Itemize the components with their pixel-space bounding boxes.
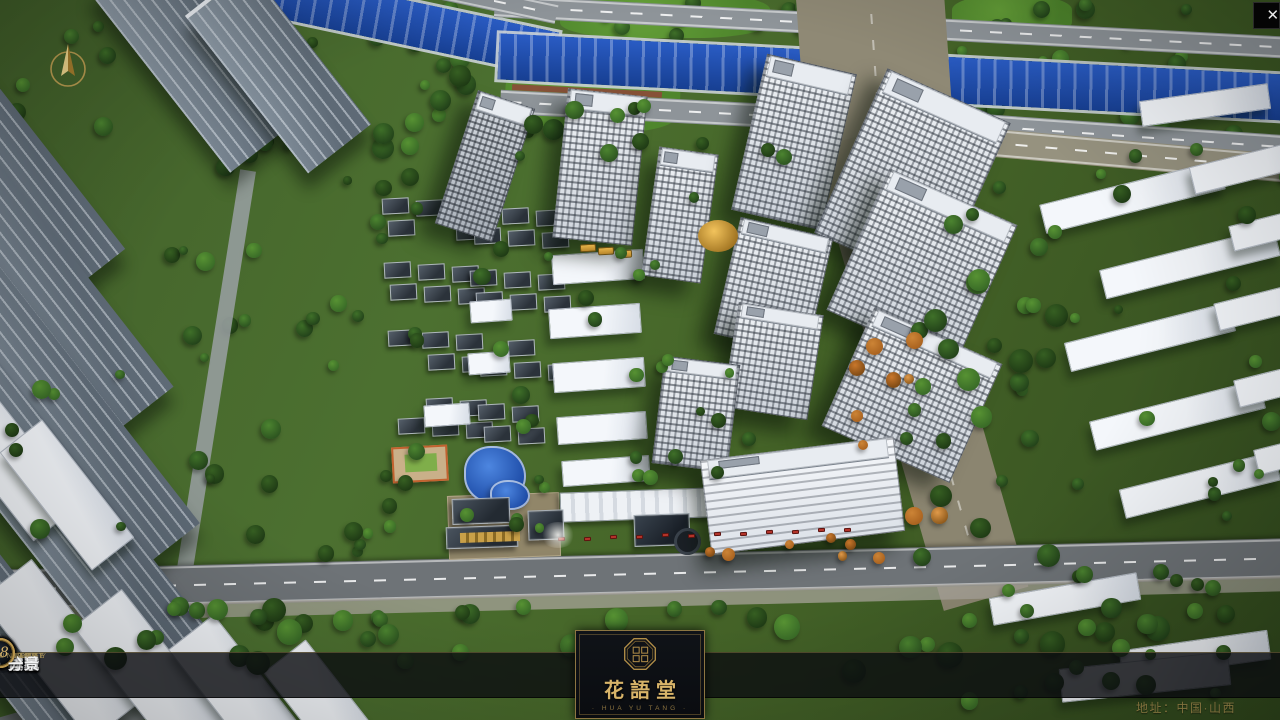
tree [1113,185,1131,203]
tree [1249,355,1262,368]
tree [761,143,775,157]
tree [261,475,279,493]
tree [776,149,792,165]
tree [330,295,347,312]
tree [908,403,922,417]
tree [1095,622,1115,642]
aerial-render-scene [0,0,1280,720]
tree [1114,305,1123,314]
orange-tree [904,374,914,384]
tree [1139,411,1154,426]
tree [420,80,430,90]
apartment-slab [423,402,470,427]
tree [1030,238,1048,256]
parked-car [766,530,773,534]
tree [1170,574,1183,587]
parked-car [740,532,747,536]
tree [669,28,684,43]
parked-car [714,531,721,535]
tree [1033,1,1050,18]
seal-emblem-icon [623,637,657,671]
tree [913,548,931,566]
tree [962,613,977,628]
orange-tree [845,539,856,550]
courtyard-home [478,403,506,420]
courtyard-home [502,207,530,224]
tree [63,614,82,633]
tree [373,123,394,144]
entrance-plaza-circle [674,528,701,555]
parked-car [792,530,799,534]
tree [509,517,524,532]
tree [516,419,531,434]
tree [968,269,990,291]
tree [987,338,1002,353]
tree [938,339,959,360]
tree [1208,477,1218,487]
tree [328,360,339,371]
tree [711,600,727,616]
courtyard-home [384,261,412,278]
tree [430,90,451,111]
tree [405,113,425,133]
tree [996,475,1008,487]
tree [378,624,399,645]
tree [179,246,188,255]
courtyard-home [382,197,410,214]
tree [512,386,530,404]
project-name-latin: · HUA YU TANG · [592,705,688,712]
tree [167,602,181,616]
courtyard-home [424,285,452,302]
tree [1036,348,1057,369]
tree [455,605,470,620]
tree [515,151,525,161]
tree [5,423,19,437]
parked-car [688,533,695,537]
tree [696,137,709,150]
tree [650,260,660,270]
tree [370,214,386,230]
apartment-slab [1213,277,1280,331]
tree [196,252,215,271]
tree [971,406,992,427]
tree [1010,373,1029,392]
tree [936,433,951,448]
tree [643,470,658,485]
tree [1254,469,1264,479]
parked-car [636,535,643,539]
tree [774,614,800,640]
tree [410,333,424,347]
courtyard-home [514,361,542,378]
tree [915,378,931,394]
courtyard-home [504,271,532,288]
tree [630,451,643,464]
tree [189,602,205,618]
tree [1078,619,1095,636]
tree [667,601,682,616]
tree [1096,169,1106,179]
tree [543,119,564,140]
courtyard-home [456,333,484,350]
courtyard-home [418,263,446,280]
tree [534,475,544,485]
tree [1187,603,1203,619]
residential-tower [722,302,824,420]
tree [1072,478,1085,491]
tree [189,451,207,469]
shuttle-bus [598,247,614,256]
tree [1026,298,1041,313]
apartment-slab [1064,302,1236,372]
tree [93,21,104,32]
tree [306,312,319,325]
tree [725,368,734,377]
tree [16,78,30,92]
tree [1037,544,1060,567]
tree [1262,412,1280,432]
project-address: 地址：中国·山西 [1136,699,1236,716]
apartment-slab [469,299,512,324]
tree [183,326,202,345]
tree [277,619,302,644]
courtyard-home [508,229,536,246]
tree [200,353,209,362]
tree [401,137,419,155]
tree [957,368,980,391]
shopfront-strip [460,531,520,543]
tree [970,518,991,539]
courtyard-home [388,219,416,236]
tree [1226,276,1241,291]
tree [1070,313,1080,323]
tree [668,449,683,464]
orange-tree [849,360,865,376]
tree [930,485,952,507]
orange-tree [906,332,923,349]
tree [398,475,414,491]
tree [460,508,474,522]
tree [384,520,397,533]
tree [1181,4,1192,15]
tree [1048,225,1062,239]
tree [1137,614,1158,635]
tree [629,368,643,382]
tree [94,117,113,136]
tree [600,144,618,162]
tree [1014,629,1029,644]
tree [246,243,262,259]
gold-sculpture [698,220,738,252]
tree [924,309,948,333]
tree [380,470,392,482]
tree [747,607,768,628]
project-logo-panel: 花語堂 · HUA YU TANG · [575,630,705,719]
project-name: 花語堂 [604,674,682,703]
tree [449,65,471,87]
tree [375,180,392,197]
tree [565,101,584,120]
tree [944,215,963,234]
tree [588,312,602,326]
tree [1021,430,1039,448]
tree [352,310,364,322]
close-button[interactable]: ✕ [1253,2,1280,29]
apartment-slab [556,411,648,445]
tree [116,522,125,531]
tree [1009,349,1033,373]
tree [137,630,157,650]
tree [1076,566,1093,583]
tree [1233,459,1245,471]
tree [1045,304,1068,327]
tree [382,498,398,514]
tree [360,631,376,647]
tree [1020,604,1034,618]
tree [30,519,50,539]
orange-tree [931,507,948,524]
parked-car [818,528,825,532]
courtyard-home [398,417,426,434]
tree [1129,149,1142,162]
tree [246,525,265,544]
tree [524,115,543,134]
tree [239,314,251,326]
orange-tree [851,410,863,422]
light-glare [540,522,576,548]
close-icon: ✕ [1267,3,1280,28]
tree [493,241,509,257]
tree [164,247,180,263]
orange-tree [785,540,794,549]
nav-label-en: COMMUNITY [0,653,32,660]
tree [957,46,966,55]
tree [1101,598,1122,619]
tree [1208,487,1221,500]
tree [333,610,353,630]
tree [99,47,116,64]
orange-tree [826,533,836,543]
tree [605,608,628,631]
tree [615,247,627,259]
courtyard-home [422,331,450,348]
tree [1205,580,1221,596]
tree [637,99,651,113]
tree [633,269,644,280]
tree [250,609,267,626]
tree [401,168,419,186]
courtyard-home [510,293,538,310]
tree [632,133,649,150]
parked-car [610,535,617,539]
shuttle-bus [580,244,596,253]
orange-tree [838,551,848,561]
parked-car [662,533,669,537]
tree [966,208,979,221]
tree [261,419,280,438]
tree [376,233,388,245]
tree [1190,143,1203,156]
orange-tree [722,548,735,561]
parked-car [584,537,591,541]
tree [363,528,373,538]
tree [742,432,756,446]
tree [318,545,334,561]
orange-tree [886,372,902,388]
tree [1238,206,1255,223]
tree [993,181,1006,194]
tree [920,637,935,652]
compass-icon [42,40,94,96]
courtyard-home [428,353,456,370]
tree [1222,511,1233,522]
tree [578,290,594,306]
tree [115,370,125,380]
tree [343,176,351,184]
tree [516,599,532,615]
courtyard-home [508,339,536,356]
tree [696,407,705,416]
orange-tree [873,552,885,564]
parked-car [844,528,851,532]
tree [1217,605,1235,623]
tree [900,432,913,445]
residential-tower [700,436,905,554]
courtyard-home [484,425,512,442]
masterplan-viewer: ✕ o1 品牌 · 介绍 BRAND SUPPORT o2 区位 · 价值 LO… [0,0,1280,720]
courtyard-home [390,283,418,300]
